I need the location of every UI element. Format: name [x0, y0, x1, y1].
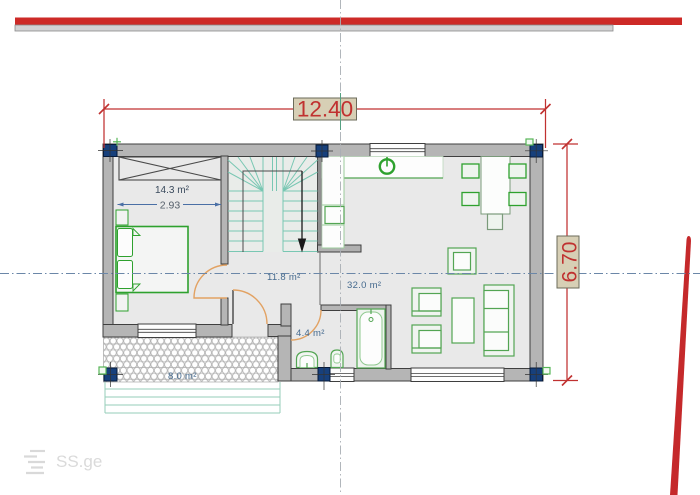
svg-text:11.8 m²: 11.8 m²: [267, 272, 301, 283]
svg-text:14.3 m²: 14.3 m²: [155, 185, 190, 196]
svg-text:8.0 m²: 8.0 m²: [168, 371, 197, 382]
svg-text:12.40: 12.40: [297, 97, 353, 122]
svg-text:2.93: 2.93: [160, 200, 181, 212]
svg-text:6.70: 6.70: [559, 242, 582, 283]
svg-text:32.0 m²: 32.0 m²: [347, 280, 381, 291]
svg-text:4.4 m²: 4.4 m²: [296, 328, 325, 339]
svg-text:SS.ge: SS.ge: [56, 452, 102, 471]
